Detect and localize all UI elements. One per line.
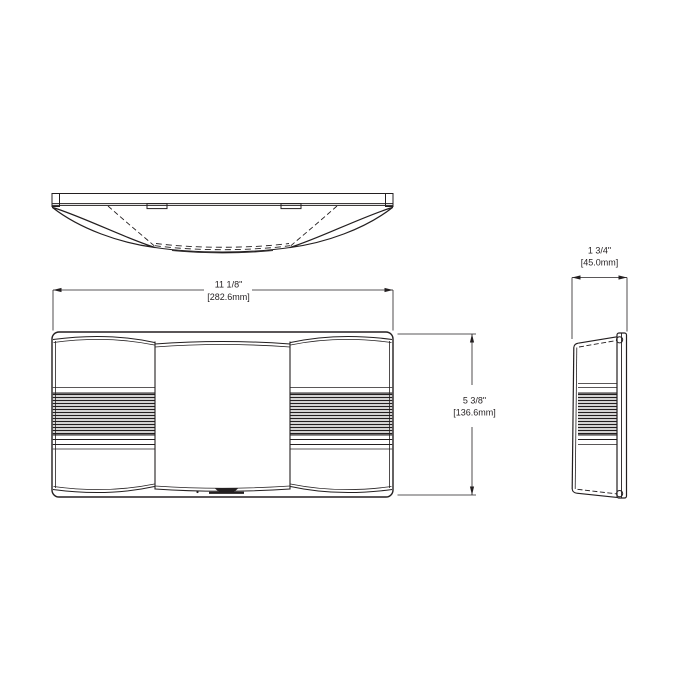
depth-arrow-left (572, 275, 581, 279)
left-head-bottom-bevel2 (54, 484, 155, 490)
depth-dimension: 1 3/4" [45.0mm] (572, 246, 627, 340)
width-dimension-imperial-label: 11 1/8" (215, 280, 243, 290)
technical-drawing: 11 1/8" [282.6mm] 5 3/8" [136.6mm] 1 3/4… (0, 0, 700, 700)
drawing-canvas: 11 1/8" [282.6mm] 5 3/8" [136.6mm] 1 3/4… (0, 0, 700, 700)
side-bottom-edge (577, 493, 617, 497)
side-head-bottom-corner (572, 489, 576, 493)
top-view-lens-hidden-edge (156, 244, 289, 248)
top-view-right-endcap (386, 194, 394, 207)
side-head-front-edge (572, 348, 574, 490)
top-view-right-hidden-edge (291, 206, 338, 246)
side-head-front-edge2 (575, 348, 577, 490)
depth-dimension-metric-label: [45.0mm] (581, 258, 619, 268)
side-view (572, 333, 626, 498)
height-dimension-imperial-label: 5 3/8" (463, 396, 486, 406)
side-top-hidden-edge (579, 341, 617, 348)
center-panel-top-edge2 (155, 345, 290, 348)
width-dimension-metric-label: [282.6mm] (207, 292, 250, 302)
mounting-tab-left (147, 204, 167, 209)
side-top-edge (578, 337, 617, 343)
right-head-bottom-bevel2 (291, 484, 392, 490)
right-lens-ribs (290, 388, 392, 450)
top-view-right-head (290, 208, 393, 248)
width-dimension: 11 1/8" [282.6mm] (53, 280, 393, 331)
top-view-left-hidden-edge (108, 206, 155, 246)
top-view (52, 194, 393, 253)
top-view-lens-hidden-edge2 (155, 246, 290, 250)
left-head-top-bevel2 (54, 339, 155, 345)
height-arrow-bottom (470, 487, 474, 496)
center-panel-top-edge (155, 342, 290, 345)
top-view-left-head (53, 208, 156, 248)
depth-arrow-right (619, 275, 628, 279)
width-arrow-right (385, 288, 394, 292)
side-head-top-corner (574, 343, 578, 347)
center-panel-bottom-edge2 (155, 486, 290, 488)
top-view-left-endcap (52, 194, 60, 207)
depth-dimension-imperial-label: 1 3/4" (588, 246, 611, 256)
left-lens-ribs (53, 388, 155, 450)
side-lens-ribs (578, 384, 617, 445)
side-bottom-hidden-edge (578, 489, 617, 494)
front-view (52, 332, 393, 497)
width-arrow-left (53, 288, 62, 292)
mounting-tab-right (281, 204, 301, 209)
right-head-top-bevel2 (291, 339, 392, 345)
height-dimension: 5 3/8" [136.6mm] (398, 334, 496, 495)
height-arrow-top (470, 334, 474, 343)
height-dimension-metric-label: [136.6mm] (453, 408, 496, 418)
